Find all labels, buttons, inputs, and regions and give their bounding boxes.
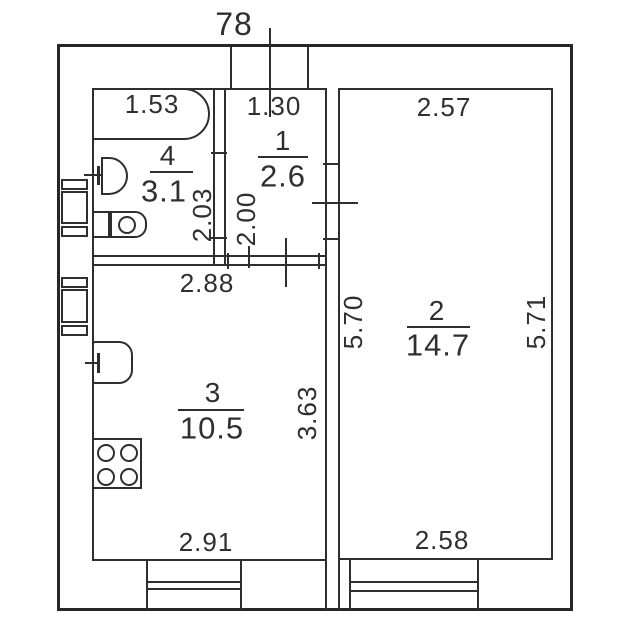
dim-room2-right-height: 5.71 [523,295,549,350]
dim-room2-top-width: 2.57 [417,94,472,120]
tick-hall-wall-upper [323,163,340,165]
floor-plan: 78 1.53 1.30 2.57 2.03 2.00 2.88 5.70 5.… [0,0,632,632]
window-sill-line [351,590,477,592]
stove-burner-icon [120,468,138,486]
window-kitchen [146,561,242,610]
wall-room2-right [551,88,553,558]
dim-entry-opening: 78 [215,8,253,40]
wall-bath-hall-bottom [92,255,327,257]
room-1-area: 2.6 [260,161,306,192]
room-2-area: 14.7 [406,330,470,361]
dim-kitchen-top-width: 2.88 [180,270,235,296]
wall-hall-kitchen-right [325,88,327,610]
vent-shaft-icon [61,277,88,288]
entry-jamb-right [307,47,309,88]
room-3-number: 3 [205,379,222,407]
tick-kitchen-door [248,246,250,268]
dim-bathroom-width: 1.53 [125,91,180,117]
vent-shaft-icon [61,325,88,336]
tick-bath-wall-upper [211,152,227,154]
dim-hall-depth: 2.00 [233,192,259,247]
dim-room2-bottom-width: 2.58 [415,527,470,553]
room-4-area: 3.1 [141,176,187,207]
dim-hall-width: 1.30 [247,93,302,119]
window-sill-line [148,581,240,583]
room-1-number: 1 [275,127,292,155]
wall-kitchen-top [92,264,327,266]
stove-burner-icon [120,444,138,462]
dim-kitchen-bottom-width: 2.91 [179,529,234,555]
dim-room2-left-height: 5.70 [340,295,366,350]
vent-shaft-icon [61,191,88,224]
entry-jamb-left [230,47,232,88]
toilet-bowl-circle-icon [118,216,136,234]
tick-cross-hall-room2 [312,202,358,204]
tick-bottom-wall-left [227,253,229,269]
room-3-area: 10.5 [180,413,244,444]
stove-burner-icon [97,468,115,486]
window-sill-line [148,588,240,590]
vent-shaft-icon [61,289,88,323]
dim-kitchen-height: 3.63 [294,386,320,441]
stove-burner-icon [97,444,115,462]
tick-cross-kitchen-wall [285,238,287,287]
vent-shaft-icon [61,179,88,190]
room-4-number: 4 [160,142,177,170]
tick-bottom-wall-right [318,253,320,269]
dim-bathroom-depth: 2.03 [189,188,215,243]
window-room2 [349,558,479,610]
wall-top-room-2 [338,88,553,90]
wall-bath-kitchen-left [92,88,94,561]
kitchen-faucet-icon [97,353,100,373]
tick-hall-wall-lower [323,238,340,240]
window-sill-line [351,581,477,583]
basin-faucet-icon [97,166,100,185]
toilet-tank-icon [92,211,110,238]
room-2-number: 2 [429,297,446,325]
vent-shaft-icon [61,226,88,237]
